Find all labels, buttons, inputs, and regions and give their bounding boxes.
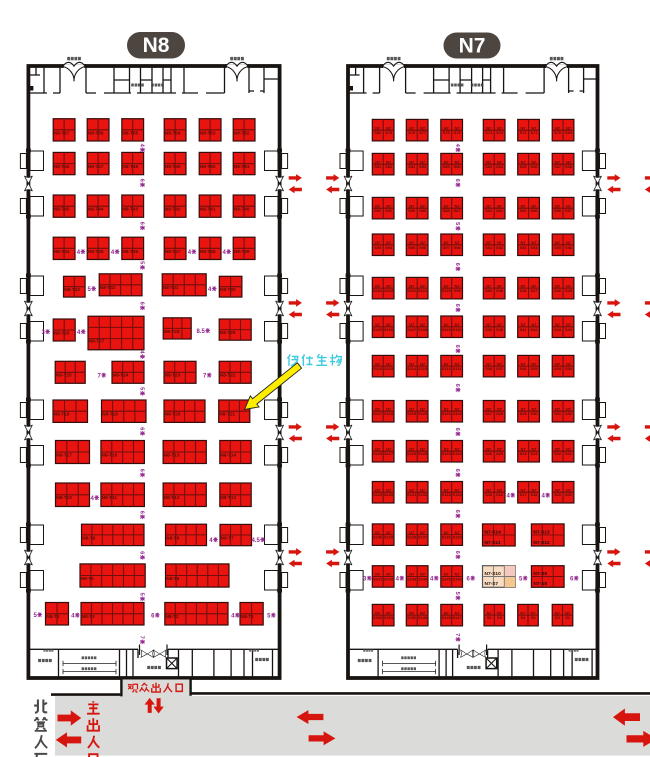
svg-text:N8-T4: N8-T4 <box>46 614 59 619</box>
svg-text:S4: S4 <box>521 615 527 620</box>
svg-text:N8-T49: N8-T49 <box>165 164 181 169</box>
svg-text:S19: S19 <box>554 492 562 497</box>
svg-text:S108: S108 <box>418 327 428 332</box>
svg-text:S111: S111 <box>453 366 462 371</box>
svg-text:S23: S23 <box>531 451 539 456</box>
svg-text:S45: S45 <box>565 288 573 293</box>
svg-text:S88: S88 <box>443 208 451 213</box>
svg-text:S94: S94 <box>385 245 393 250</box>
svg-text:S73: S73 <box>496 130 504 135</box>
svg-text:S71: S71 <box>531 130 539 135</box>
svg-text:N8-T44: N8-T44 <box>88 207 104 212</box>
svg-text:N8-T19: N8-T19 <box>102 412 118 417</box>
svg-text:S115: S115 <box>384 366 394 371</box>
svg-text:N8-T23: N8-T23 <box>165 373 181 378</box>
svg-text:N8-T5: N8-T5 <box>81 576 94 581</box>
svg-text:S1: S1 <box>565 615 571 620</box>
svg-text:S98: S98 <box>454 245 462 250</box>
svg-text:S38: S38 <box>485 366 493 371</box>
svg-text:N8-T17: N8-T17 <box>56 452 72 457</box>
svg-text:S26: S26 <box>485 451 493 456</box>
svg-text:S135: S135 <box>453 535 463 540</box>
svg-text:N8-T41: N8-T41 <box>200 207 216 212</box>
svg-text:S27: S27 <box>485 411 492 416</box>
svg-text:S132: S132 <box>418 492 428 497</box>
svg-text:N7: N7 <box>459 34 486 57</box>
svg-text:N8-T24: N8-T24 <box>113 373 129 378</box>
svg-text:S83: S83 <box>408 164 416 169</box>
svg-text:S34: S34 <box>554 366 562 371</box>
svg-text:N8-T53: N8-T53 <box>200 130 216 135</box>
svg-text:S89: S89 <box>419 208 427 213</box>
svg-text:S131: S131 <box>407 492 417 497</box>
svg-text:S69: S69 <box>565 130 573 135</box>
svg-text:S149: S149 <box>418 615 428 620</box>
svg-text:N7-S10: N7-S10 <box>485 571 502 577</box>
svg-text:S100: S100 <box>442 288 451 293</box>
svg-text:S142: S142 <box>384 577 394 582</box>
svg-text:N8-T22: N8-T22 <box>220 373 236 378</box>
svg-text:N8-T56: N8-T56 <box>88 130 104 135</box>
svg-text:S130: S130 <box>384 492 393 497</box>
svg-text:N8: N8 <box>143 34 170 57</box>
svg-text:S70: S70 <box>554 130 561 135</box>
svg-text:S30: S30 <box>531 411 538 416</box>
svg-text:S144: S144 <box>418 577 428 582</box>
svg-text:N8-T14: N8-T14 <box>221 452 237 457</box>
svg-text:N8-T50: N8-T50 <box>200 164 216 169</box>
svg-text:S127: S127 <box>384 451 393 456</box>
svg-text:N8-T3: N8-T3 <box>82 614 95 619</box>
svg-text:N8-T37: N8-T37 <box>165 249 181 254</box>
svg-text:S43: S43 <box>554 327 562 332</box>
svg-text:S5: S5 <box>497 615 503 620</box>
svg-text:N8-T21: N8-T21 <box>219 412 235 417</box>
svg-text:S16: S16 <box>496 492 504 497</box>
svg-text:S148: S148 <box>442 615 452 620</box>
svg-text:S99: S99 <box>454 288 462 293</box>
svg-text:N8-T57: N8-T57 <box>54 130 70 135</box>
svg-text:N8-T10: N8-T10 <box>56 495 72 500</box>
svg-text:N8-T42: N8-T42 <box>165 207 181 212</box>
svg-text:S25: S25 <box>496 451 504 456</box>
svg-text:S104: S104 <box>373 288 383 293</box>
svg-text:S138: S138 <box>407 535 417 540</box>
svg-text:S32: S32 <box>565 411 573 416</box>
svg-text:S28: S28 <box>496 411 504 416</box>
svg-text:N7-S7: N7-S7 <box>485 581 499 587</box>
svg-text:S44: S44 <box>565 327 573 332</box>
svg-text:N8-T51: N8-T51 <box>234 164 250 169</box>
svg-text:N8-T55: N8-T55 <box>123 130 139 135</box>
svg-text:N7-S12: N7-S12 <box>533 540 550 546</box>
svg-text:N8-T40: N8-T40 <box>234 207 250 212</box>
svg-text:S35: S35 <box>531 366 539 371</box>
svg-text:S39: S39 <box>485 327 493 332</box>
svg-text:S103: S103 <box>384 288 394 293</box>
svg-text:S114: S114 <box>407 366 417 371</box>
svg-text:N8-T32: N8-T32 <box>100 285 116 290</box>
svg-text:S93: S93 <box>374 245 382 250</box>
svg-text:S145: S145 <box>442 577 452 582</box>
svg-text:S117: S117 <box>373 411 382 416</box>
svg-text:S151: S151 <box>384 615 394 620</box>
svg-text:S129: S129 <box>373 492 383 497</box>
svg-text:S24: S24 <box>520 451 528 456</box>
svg-text:S60: S60 <box>520 208 527 213</box>
svg-text:S118: S118 <box>384 411 394 416</box>
svg-text:N8-T29: N8-T29 <box>220 330 236 335</box>
svg-text:S120: S120 <box>418 411 427 416</box>
svg-text:S110: S110 <box>453 327 462 332</box>
svg-text:S31: S31 <box>554 411 562 416</box>
svg-text:N7-S11: N7-S11 <box>485 540 501 546</box>
svg-text:N8-T38: N8-T38 <box>200 249 216 254</box>
svg-text:S58: S58 <box>554 208 562 213</box>
svg-text:N8-T11: N8-T11 <box>102 495 118 500</box>
svg-text:7: 7 <box>454 633 460 636</box>
svg-text:S137: S137 <box>418 535 427 540</box>
svg-text:S68: S68 <box>565 164 573 169</box>
svg-text:S82: S82 <box>385 164 393 169</box>
svg-text:S143: S143 <box>407 577 417 582</box>
svg-text:S128: S128 <box>373 451 383 456</box>
svg-text:S40: S40 <box>496 327 503 332</box>
svg-text:S20: S20 <box>565 492 572 497</box>
svg-text:N7-S8: N7-S8 <box>533 581 547 587</box>
svg-text:N7-S13: N7-S13 <box>533 530 550 536</box>
svg-text:S121: S121 <box>442 411 452 416</box>
svg-text:S2: S2 <box>555 615 561 620</box>
svg-text:S33: S33 <box>565 366 573 371</box>
svg-text:S106: S106 <box>384 327 394 332</box>
svg-text:4.5: 4.5 <box>252 538 261 544</box>
svg-text:S119: S119 <box>407 411 417 416</box>
svg-text:S105: S105 <box>373 327 383 332</box>
svg-text:N8-T47: N8-T47 <box>88 164 104 169</box>
svg-text:N8-T35: N8-T35 <box>88 249 104 254</box>
svg-text:N8-T28: N8-T28 <box>164 329 180 334</box>
svg-text:S146: S146 <box>453 577 463 582</box>
svg-text:S92: S92 <box>374 208 382 213</box>
svg-text:N8-T54: N8-T54 <box>165 130 181 135</box>
svg-text:S66: S66 <box>531 164 539 169</box>
svg-text:S112: S112 <box>442 366 452 371</box>
svg-text:N8-T27: N8-T27 <box>89 339 105 344</box>
svg-text:N8-T34: N8-T34 <box>54 249 70 254</box>
svg-text:S140: S140 <box>373 535 382 540</box>
svg-text:S126: S126 <box>407 451 417 456</box>
svg-text:N8-T46: N8-T46 <box>54 164 70 169</box>
svg-text:S46: S46 <box>554 288 562 293</box>
svg-text:S91: S91 <box>385 208 393 213</box>
svg-text:S37: S37 <box>496 366 503 371</box>
svg-text:S152: S152 <box>373 615 383 620</box>
svg-text:N8-T18: N8-T18 <box>54 412 70 417</box>
svg-text:S56: S56 <box>565 245 573 250</box>
svg-text:S79: S79 <box>385 130 393 135</box>
svg-text:N8-T33: N8-T33 <box>64 287 80 292</box>
svg-text:N8-T52: N8-T52 <box>234 130 250 135</box>
svg-text:N8-T25: N8-T25 <box>56 373 72 378</box>
svg-text:S141: S141 <box>373 577 383 582</box>
svg-text:S86: S86 <box>454 164 462 169</box>
svg-text:S84: S84 <box>419 164 427 169</box>
svg-text:S42: S42 <box>531 327 539 332</box>
svg-text:N7-S9: N7-S9 <box>533 571 547 577</box>
svg-text:S87: S87 <box>454 208 461 213</box>
svg-text:S134: S134 <box>453 492 463 497</box>
svg-text:N8-T20: N8-T20 <box>165 412 181 417</box>
svg-text:N8-T48: N8-T48 <box>123 164 139 169</box>
svg-text:S150: S150 <box>407 615 416 620</box>
svg-text:N8-T2: N8-T2 <box>166 614 179 619</box>
svg-text:S123: S123 <box>453 451 463 456</box>
svg-text:S107: S107 <box>407 327 416 332</box>
svg-text:N8-T45: N8-T45 <box>54 207 70 212</box>
svg-text:S36: S36 <box>520 366 528 371</box>
svg-text:S96: S96 <box>419 245 427 250</box>
svg-text:N8-T15: N8-T15 <box>164 452 180 457</box>
svg-text:N8-T12: N8-T12 <box>164 495 180 500</box>
svg-text:S75: S75 <box>454 130 462 135</box>
svg-text:S54: S54 <box>531 245 539 250</box>
svg-text:S81: S81 <box>374 164 382 169</box>
svg-text:S6: S6 <box>487 615 493 620</box>
svg-text:S102: S102 <box>407 288 417 293</box>
svg-text:S78: S78 <box>408 130 416 135</box>
svg-text:S72: S72 <box>520 130 528 135</box>
svg-text:N8-T43: N8-T43 <box>123 207 139 212</box>
svg-text:S59: S59 <box>531 208 539 213</box>
svg-text:N8-T39: N8-T39 <box>234 249 250 254</box>
svg-text:S95: S95 <box>408 245 416 250</box>
svg-text:S77: S77 <box>419 130 426 135</box>
svg-text:N8-T8: N8-T8 <box>166 535 179 540</box>
svg-text:S49: S49 <box>496 288 504 293</box>
svg-text:7: 7 <box>138 636 144 639</box>
svg-text:S147: S147 <box>453 615 462 620</box>
svg-text:S29: S29 <box>520 411 528 416</box>
svg-text:S61: S61 <box>496 208 504 213</box>
svg-text:S51: S51 <box>485 245 493 250</box>
svg-text:8.5: 8.5 <box>197 329 206 335</box>
svg-text:N8-T7: N8-T7 <box>221 535 234 540</box>
svg-text:S18: S18 <box>531 492 539 497</box>
svg-text:S76: S76 <box>443 130 451 135</box>
svg-text:S85: S85 <box>443 164 451 169</box>
svg-text:S63: S63 <box>485 164 493 169</box>
svg-text:S41: S41 <box>520 327 528 332</box>
svg-text:S125: S125 <box>418 451 428 456</box>
svg-text:N8-T30: N8-T30 <box>220 287 236 292</box>
svg-text:S113: S113 <box>418 366 428 371</box>
svg-text:S74: S74 <box>485 130 493 135</box>
svg-text:N8-T26: N8-T26 <box>54 330 70 335</box>
svg-text:S90: S90 <box>408 208 415 213</box>
svg-text:S15: S15 <box>485 492 493 497</box>
svg-text:S124: S124 <box>442 451 452 456</box>
svg-text:S65: S65 <box>520 164 528 169</box>
svg-text:S64: S64 <box>496 164 504 169</box>
svg-text:N8-T16: N8-T16 <box>102 452 118 457</box>
svg-text:N8-T1: N8-T1 <box>241 614 254 619</box>
svg-text:S67: S67 <box>554 164 561 169</box>
svg-text:S101: S101 <box>418 288 428 293</box>
svg-text:S48: S48 <box>520 288 528 293</box>
svg-text:S3: S3 <box>531 615 537 620</box>
svg-text:S62: S62 <box>485 208 493 213</box>
svg-text:S136: S136 <box>442 535 452 540</box>
svg-text:N7-S14: N7-S14 <box>485 530 502 536</box>
svg-text:S53: S53 <box>520 245 528 250</box>
svg-text:N8-T31: N8-T31 <box>163 285 179 290</box>
svg-text:S122: S122 <box>453 411 463 416</box>
svg-text:N8-T36: N8-T36 <box>123 249 139 254</box>
svg-text:S21: S21 <box>565 451 573 456</box>
svg-text:S47: S47 <box>531 288 538 293</box>
svg-text:S133: S133 <box>442 492 452 497</box>
svg-text:S97: S97 <box>443 245 450 250</box>
svg-text:S52: S52 <box>496 245 504 250</box>
svg-text:S55: S55 <box>554 245 562 250</box>
svg-text:N8-T13: N8-T13 <box>221 495 237 500</box>
svg-text:S80: S80 <box>374 130 381 135</box>
svg-text:S22: S22 <box>554 451 562 456</box>
svg-text:S17: S17 <box>520 492 527 497</box>
svg-text:N8-T6: N8-T6 <box>166 576 179 581</box>
svg-text:S57: S57 <box>565 208 572 213</box>
svg-text:N8-T9: N8-T9 <box>82 535 95 540</box>
svg-text:S139: S139 <box>384 535 394 540</box>
svg-text:S116: S116 <box>373 366 383 371</box>
svg-text:S109: S109 <box>442 327 452 332</box>
svg-text:S50: S50 <box>485 288 492 293</box>
